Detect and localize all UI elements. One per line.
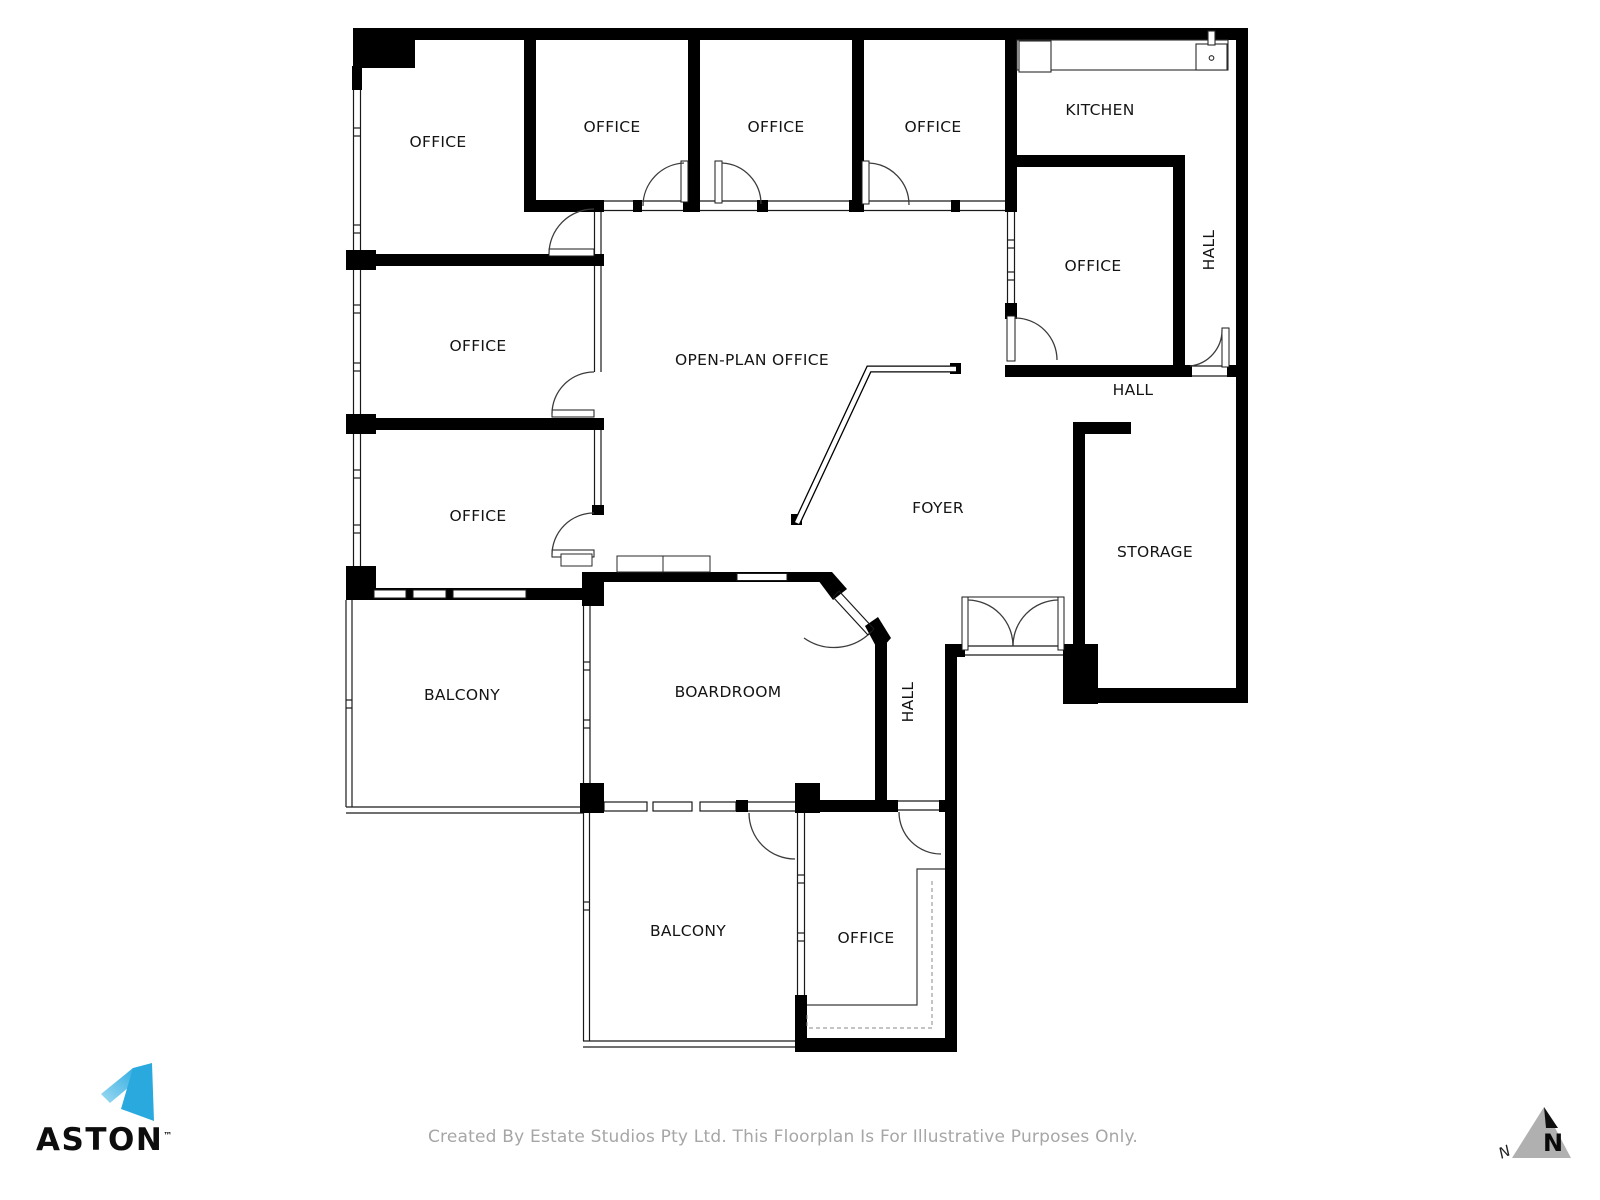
room-label-boardroom: BOARDROOM	[675, 683, 782, 701]
room-label-office-d: OFFICE	[904, 118, 961, 136]
kitchen-drain-icon	[1209, 56, 1214, 61]
door-leaf-office-c	[715, 161, 722, 203]
doors	[549, 161, 1229, 859]
door-leaf-office-mid-left	[552, 410, 594, 417]
room-label-office-a: OFFICE	[409, 133, 466, 151]
door-arc-office-a	[549, 209, 594, 254]
door-arc-office-b	[643, 163, 684, 206]
door-arc-boardroom	[804, 632, 871, 648]
door-arc-office-bottom	[899, 812, 941, 854]
door-arc-office-right	[1015, 318, 1057, 360]
floorplan-drawing	[0, 0, 1600, 1200]
door-leaf-office-a	[549, 249, 594, 256]
credenza-outlines	[561, 554, 710, 572]
door-arc-foyer-right	[1013, 600, 1058, 646]
room-label-storage: STORAGE	[1117, 543, 1193, 561]
room-label-office-right: OFFICE	[1064, 257, 1121, 275]
door-arc-office-low-left	[552, 513, 594, 555]
aston-logo-icon	[101, 1063, 154, 1121]
room-label-office-c: OFFICE	[747, 118, 804, 136]
room-label-foyer: FOYER	[912, 499, 964, 517]
room-label-office-low-left: OFFICE	[449, 507, 506, 525]
aston-logo-text: ASTON™	[36, 1122, 174, 1158]
office-bottom-interior	[807, 869, 945, 1028]
aston-trademark: ™	[163, 1132, 174, 1142]
door-arc-balcony	[749, 813, 795, 859]
door-leaf-office-right	[1007, 316, 1015, 361]
door-arc-hall	[1190, 330, 1222, 366]
room-label-office-mid-left: OFFICE	[449, 337, 506, 355]
room-label-hall-lower: HALL	[899, 682, 917, 723]
windows-and-railings	[346, 88, 1227, 1047]
room-label-hall-right-vertical: HALL	[1200, 230, 1218, 271]
door-leaf-foyer-right	[1058, 597, 1064, 650]
door-arc-office-mid-left	[552, 372, 594, 414]
room-label-balcony-left: BALCONY	[424, 686, 500, 704]
room-label-office-bottom: OFFICE	[837, 929, 894, 947]
footer-disclaimer: Created By Estate Studios Pty Ltd. This …	[428, 1127, 1138, 1147]
room-label-open-plan: OPEN-PLAN OFFICE	[675, 351, 829, 369]
room-label-office-b: OFFICE	[583, 118, 640, 136]
door-arc-foyer-left	[968, 600, 1013, 646]
kitchen-faucet-icon	[1208, 31, 1215, 45]
door-leaf-foyer-left	[962, 597, 968, 650]
floorplan-page: OFFICE OFFICE OFFICE OFFICE KITCHEN OFFI…	[0, 0, 1600, 1200]
door-arc-office-d	[869, 163, 909, 205]
room-label-hall-right: HALL	[1113, 381, 1154, 399]
door-arc-office-c	[722, 163, 761, 204]
compass-north-letter: N	[1543, 1129, 1563, 1157]
room-label-kitchen: KITCHEN	[1065, 101, 1134, 119]
room-label-balcony-bottom: BALCONY	[650, 922, 726, 940]
kitchen-appliance	[1019, 41, 1051, 72]
door-leaf-office-b	[681, 161, 688, 202]
door-leaf-office-d	[862, 161, 869, 204]
aston-name: ASTON	[36, 1122, 163, 1158]
door-leaf-hall	[1222, 328, 1229, 367]
